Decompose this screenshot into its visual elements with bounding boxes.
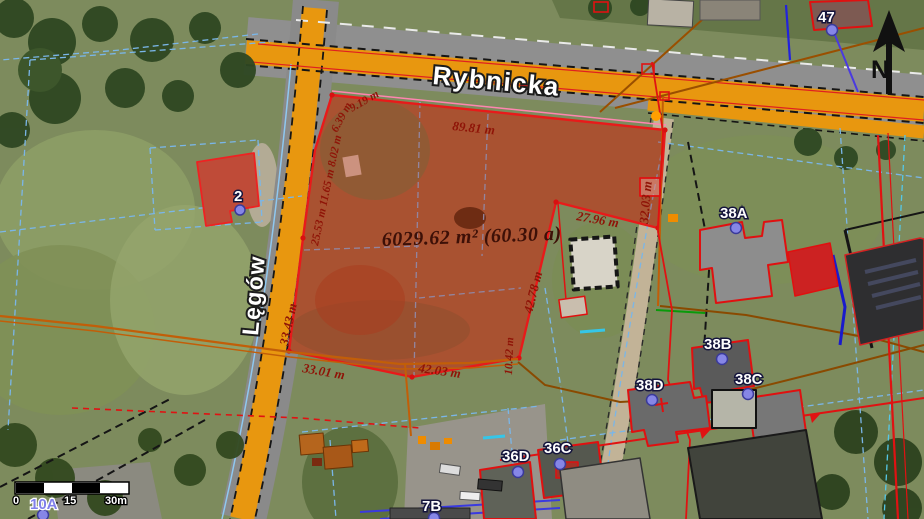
scale-end: 30m bbox=[105, 495, 127, 507]
map-canvas[interactable]: 89.81 m 6029.62 m² (60.30 a) 27.96 m 32.… bbox=[0, 0, 924, 519]
address-label-2: 2 bbox=[234, 188, 242, 205]
address-dot-47[interactable] bbox=[827, 25, 838, 36]
map-viewport[interactable]: 89.81 m 6029.62 m² (60.30 a) 27.96 m 32.… bbox=[0, 0, 924, 519]
address-dot-38d[interactable] bbox=[647, 395, 658, 406]
address-dot-2[interactable] bbox=[235, 205, 245, 215]
address-dot-36c[interactable] bbox=[555, 459, 566, 470]
address-dot-36d[interactable] bbox=[513, 467, 524, 478]
address-label-47: 47 bbox=[818, 9, 835, 26]
north-letter: N bbox=[871, 56, 889, 84]
building-red-garage bbox=[788, 243, 838, 296]
address-label-38b: 38B bbox=[704, 336, 732, 353]
address-label-10a: 10A bbox=[30, 496, 58, 513]
scale-start: 0 bbox=[13, 495, 19, 507]
address-label-36c: 36C bbox=[544, 440, 572, 457]
building-36d bbox=[480, 462, 536, 519]
building-hatched-square bbox=[570, 237, 617, 290]
measure-right-short-vertical: 10.42 m bbox=[503, 337, 516, 375]
address-label-36d: 36D bbox=[502, 448, 530, 465]
address-label-38a: 38A bbox=[720, 205, 748, 222]
address-dot-38b[interactable] bbox=[717, 354, 728, 365]
address-label-7b: 7B bbox=[422, 498, 441, 515]
address-dot-38c[interactable] bbox=[743, 389, 754, 400]
address-dot-38a[interactable] bbox=[731, 223, 742, 234]
address-label-38d: 38D bbox=[636, 377, 664, 394]
scale-mid: 15 bbox=[64, 495, 76, 507]
address-label-38c: 38C bbox=[735, 371, 763, 388]
